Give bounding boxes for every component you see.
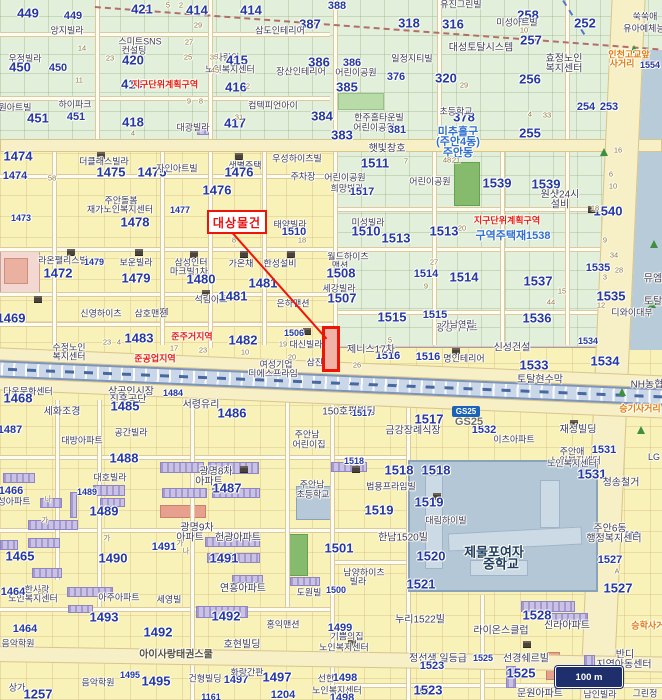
map-label: 범용프라임빌: [366, 480, 416, 493]
map-label: 1517: [352, 408, 372, 418]
map-label: 재성빌딩: [560, 421, 597, 436]
map-label: 29: [460, 81, 468, 90]
map-label: 대림하이빌: [425, 514, 466, 527]
map-label: 화랑간판: [230, 666, 263, 679]
map-label: 성아파트: [0, 495, 31, 508]
map-label: 1518: [422, 463, 451, 478]
scale-bar: 100 m: [555, 666, 623, 688]
street: [95, 0, 100, 140]
map-label: 1519: [365, 503, 394, 518]
map-label: 1491: [210, 551, 239, 566]
map-label: 가: [104, 533, 111, 544]
map-label: 어린이집: [292, 438, 325, 451]
map-label: 그린정: [633, 687, 658, 700]
map-label: 어린이공원: [409, 175, 450, 188]
map-label: 1521: [407, 577, 436, 592]
map-label: 하이파크: [58, 98, 91, 111]
map-label: 1492: [212, 609, 241, 624]
map-label: 388: [328, 0, 346, 12]
map-label: 사거리: [610, 57, 635, 70]
map-label: 26: [353, 361, 361, 370]
map-label: 1493: [90, 610, 119, 625]
map-block: [4, 258, 28, 284]
map-label: 450: [9, 60, 31, 75]
street: [0, 247, 625, 252]
map-label: 1485: [111, 399, 140, 414]
gs25-logo-badge: GS25: [452, 406, 480, 417]
map-label: 1479: [84, 257, 104, 267]
map-label: 대호빌라: [93, 471, 126, 484]
map-label: 1500: [326, 585, 346, 595]
map-label: 승학사거리: [631, 619, 662, 632]
map-label: 318: [398, 16, 420, 31]
map-label: 중학교: [483, 554, 519, 573]
map-label: 1465: [6, 549, 35, 564]
map-label: 1513: [382, 231, 411, 246]
map-label: 지구단위계획구역: [132, 78, 198, 91]
map-label: 9: [187, 97, 191, 106]
map-label: 초등학교: [439, 105, 472, 118]
map-label: 호현빌딩: [224, 636, 261, 651]
map-label: 1511: [361, 156, 389, 171]
map-label: 1488: [110, 451, 139, 466]
map-label: 25: [184, 53, 192, 62]
map-label: 1498: [330, 692, 354, 700]
map-label: 420: [122, 53, 144, 68]
map-label: 라이온스클럽: [473, 622, 528, 637]
map-label: 노인복지센터: [319, 641, 369, 654]
map-label: 1554: [640, 60, 660, 70]
map-canvas[interactable]: 449449앙지빌라421414414388유진그린빌3183162582522…: [0, 0, 662, 700]
map-label: 아이사랑태권스쿨: [139, 646, 213, 661]
map-label: 1475: [97, 165, 126, 180]
apartment-block: [28, 520, 78, 530]
map-label: 449: [17, 6, 39, 21]
map-label: 21: [452, 156, 460, 165]
map-label: 복지센터: [546, 60, 583, 75]
map-label: 유아예체능: [623, 22, 662, 35]
map-label: 준주거지역: [171, 330, 212, 343]
map-label: 앙지빌라: [50, 24, 83, 37]
map-label: 1513: [430, 224, 459, 239]
map-label: 29: [194, 21, 202, 30]
map-label: 23: [103, 338, 111, 347]
map-label: 1527: [604, 581, 633, 596]
map-label: 2: [179, 1, 183, 10]
map-label: 승기사거리: [619, 402, 660, 415]
map-label: 신성건설: [494, 339, 531, 354]
apartment-block: [3, 473, 35, 483]
map-label: 23: [106, 54, 114, 63]
map-label: 연흥아파트: [220, 580, 266, 595]
map-label: 376: [387, 71, 405, 83]
map-label: 1161: [201, 692, 221, 700]
tree-icon: [618, 388, 626, 396]
map-label: 1476: [203, 183, 232, 198]
map-label: 1484: [163, 388, 183, 398]
street: [262, 152, 267, 345]
map-label: 385: [336, 80, 358, 95]
map-label: 5: [166, 1, 170, 10]
map-label: 1537: [524, 274, 553, 289]
map-label: 1520: [417, 549, 446, 564]
map-label: 1534: [591, 354, 620, 369]
map-label: 17: [170, 344, 178, 353]
map-label: 31: [235, 113, 243, 122]
street: [55, 400, 60, 580]
map-label: 도원빌: [297, 586, 322, 599]
map-label: 1514: [414, 268, 438, 280]
tree-icon: [637, 426, 645, 434]
map-label: 27: [185, 38, 193, 47]
map-label: 414: [240, 3, 262, 18]
map-label: 서령유리: [183, 396, 220, 411]
map-label: 449: [64, 10, 82, 22]
map-label: 27: [430, 258, 438, 267]
map-label: 장산인테리어: [276, 65, 326, 78]
map-label: 381: [388, 124, 406, 136]
map-label: GS25: [455, 416, 483, 428]
map-label: 1510: [352, 224, 381, 239]
map-label: 10: [609, 182, 617, 191]
map-label: 1469: [0, 311, 25, 326]
map-label: 준공업지역: [134, 352, 175, 365]
map-label: 19: [279, 340, 287, 349]
map-label: 주차장: [291, 170, 316, 183]
apartment-block: [162, 488, 207, 498]
tree-icon: [650, 240, 658, 248]
street: [336, 207, 626, 212]
map-label: 1489: [90, 504, 119, 519]
school-building: [540, 480, 560, 528]
map-label: 선경쉐르빌: [503, 650, 549, 665]
map-label: 청송철거: [603, 474, 640, 489]
map-label: 1479: [122, 271, 151, 286]
map-label: 햇빛창호: [369, 140, 406, 155]
map-label: A: [614, 567, 619, 576]
map-label: 15: [558, 287, 566, 296]
map-label: 헌광아파트: [215, 529, 261, 544]
map-label: 1491: [152, 541, 176, 553]
map-label: 1539: [483, 176, 512, 191]
map-label: 11: [75, 76, 83, 85]
map-label: 255: [519, 126, 541, 141]
map-label: 7: [404, 157, 408, 166]
map-label: 58: [48, 174, 56, 183]
map-label: 남인빌라: [583, 688, 616, 700]
map-label: 신영하이츠: [80, 307, 121, 320]
map-label: 명인테리어: [443, 352, 484, 365]
map-label: 한남1520빌: [378, 529, 428, 544]
map-label: 1501: [325, 541, 354, 556]
map-label: 1478: [121, 215, 150, 230]
map-label: 대광빌라: [176, 121, 209, 134]
map-label: 450: [49, 62, 67, 74]
map-label: 16: [614, 146, 622, 155]
map-label: 1495: [120, 670, 140, 680]
map-label: 1507: [328, 291, 357, 306]
street: [285, 400, 290, 607]
map-label: 1486: [218, 406, 247, 421]
map-label: 1468: [4, 391, 33, 406]
map-label: 신라아파트: [544, 617, 590, 632]
map-label: 4: [528, 110, 532, 119]
map-label: 대방아파트: [61, 434, 102, 447]
map-label: 구역주택재1538: [475, 227, 550, 243]
map-label: 1492: [144, 625, 173, 640]
map-label: 삼호맨션: [134, 307, 167, 320]
map-label: 이츠아파트: [493, 433, 534, 446]
map-label: 유진그린빌: [440, 0, 481, 11]
map-label: 1525: [507, 666, 536, 681]
map-label: 1518: [344, 456, 364, 466]
map-label: 10: [520, 26, 528, 35]
apartment-block: [93, 485, 125, 496]
map-label: 1204: [271, 689, 295, 700]
map-label: 1506: [284, 328, 304, 338]
map-label: 1472: [44, 266, 73, 281]
map-block: [289, 534, 308, 576]
map-label: 418: [122, 115, 144, 130]
map-label: 1473: [11, 213, 31, 223]
map-label: 1482: [229, 333, 258, 348]
tree-icon: [600, 148, 608, 156]
map-label: 1531: [592, 444, 616, 456]
map-label: 뮤엠: [644, 270, 662, 285]
map-label: 보운빌라: [119, 256, 152, 269]
building-icon: [352, 466, 360, 473]
map-label: 우성하이츠빌: [272, 152, 322, 165]
map-label: 디와이대부: [611, 306, 652, 319]
map-label: 미성아트빌: [496, 16, 537, 29]
map-label: 9: [603, 236, 607, 245]
map-label: 빌라: [350, 575, 367, 588]
map-label: 세화조경: [44, 403, 81, 418]
map-label: 1523: [420, 660, 444, 672]
target-callout[interactable]: 대상물건: [207, 210, 267, 234]
map-label: 대성토탈시스템: [449, 39, 513, 54]
map-block: [338, 93, 384, 110]
map-label: 초등학교: [296, 488, 329, 501]
map-label: 421: [131, 2, 153, 17]
map-label: 일정지티빌: [391, 52, 432, 65]
map-label: 5: [388, 336, 392, 345]
map-label: 451: [67, 111, 85, 123]
map-label: 35: [210, 53, 218, 62]
map-label: 48: [443, 156, 451, 165]
map-label: NH농협: [631, 376, 662, 391]
map-label: 1534: [578, 336, 598, 346]
map-label: 23: [199, 346, 207, 355]
map-label: 254: [577, 101, 595, 113]
map-label: 나: [45, 494, 52, 505]
map-label: 가온채: [229, 257, 254, 270]
map-label: 2: [246, 82, 250, 91]
apartment-block: [70, 492, 77, 518]
map-label: 1515: [378, 310, 407, 325]
map-label: 252: [574, 16, 596, 31]
map-label: 공간빌라: [114, 426, 147, 439]
map-label: 1476: [225, 165, 254, 180]
map-label: 1487: [213, 481, 242, 496]
map-label: 416: [225, 80, 247, 95]
map-label: 1508: [327, 266, 356, 281]
building-icon: [523, 641, 531, 648]
map-label: 대신빌라: [289, 338, 322, 351]
map-label: 1257: [24, 687, 53, 700]
map-label: 나: [183, 546, 190, 557]
map-label: 지구단위계획구역: [474, 214, 540, 227]
target-parcel-highlight[interactable]: [322, 326, 340, 372]
map-label: 1464: [13, 623, 37, 635]
map-label: 384: [311, 109, 333, 124]
map-label: 홍익맨션: [266, 618, 299, 631]
map-label: 8: [199, 97, 203, 106]
map-label: 257: [520, 33, 542, 48]
apartment-block: [32, 568, 62, 578]
map-label: 어린이공원: [335, 66, 376, 79]
map-label: 320: [435, 71, 457, 86]
map-label: 1517: [350, 186, 374, 198]
map-label: 1474: [3, 170, 27, 182]
map-label: 세영빌: [157, 593, 182, 606]
map-label: 음악학원: [81, 676, 114, 689]
map-label: 행정복지센터: [586, 530, 641, 545]
map-label: 1481: [219, 289, 248, 304]
map-label: 20: [458, 224, 466, 233]
map-label: 1519: [415, 495, 444, 510]
map-label: 삼도인테리어: [255, 24, 305, 37]
apartment-block: [160, 462, 204, 473]
map-label: 가남연립: [441, 318, 474, 331]
map-label: 1474: [4, 149, 33, 164]
map-label: 10: [241, 348, 249, 357]
map-label: 316: [442, 17, 464, 32]
map-label: 토탈현수막: [517, 371, 563, 386]
map-label: 1523: [414, 683, 443, 698]
map-label: 9: [424, 282, 428, 291]
map-label: 1464: [1, 586, 25, 598]
map-label: 1483: [125, 331, 154, 346]
map-label: LG: [648, 452, 660, 462]
map-label: 한성설비: [263, 257, 296, 270]
map-label: 383: [331, 128, 353, 143]
map-label: 1536: [523, 311, 552, 326]
map-label: 4: [117, 338, 121, 347]
map-label: 12: [597, 301, 605, 310]
map-label: 1498: [333, 672, 357, 684]
map-label: 설비: [551, 196, 569, 211]
map-label: 44: [547, 298, 555, 307]
map-label: 4: [131, 129, 135, 138]
map-block: [160, 505, 206, 518]
map-label: 1490: [99, 551, 128, 566]
map-label: 1477: [170, 205, 190, 215]
map-label: 금강장례식장: [385, 422, 440, 437]
apartment-block: [28, 538, 60, 548]
map-label: 1527: [598, 554, 622, 566]
map-block: [454, 162, 480, 206]
map-label: 1525: [473, 653, 493, 663]
map-label: 6: [609, 170, 613, 179]
map-label: 자인아트빌: [156, 162, 197, 175]
map-label: 라: [38, 587, 45, 598]
map-label: 1487: [0, 424, 22, 436]
street: [0, 607, 331, 612]
map-label: 1518: [385, 463, 414, 478]
map-label: 14: [78, 44, 86, 53]
building-icon: [34, 296, 42, 303]
map-label: 18: [298, 236, 306, 245]
map-label: 아주아파트: [98, 591, 139, 604]
map-label: 45: [211, 66, 219, 75]
map-label: 33: [543, 111, 551, 120]
map-label: 1489: [77, 487, 97, 497]
map-label: 건형빌딩: [188, 672, 221, 685]
map-label: 253: [600, 101, 618, 113]
map-label: 1495: [142, 674, 171, 689]
map-label: 1480: [187, 272, 216, 287]
street: [0, 322, 336, 327]
map-label: 복지센터: [52, 350, 85, 363]
map-label: 3: [603, 273, 607, 282]
building-icon: [303, 328, 311, 335]
building-icon: [240, 466, 248, 473]
map-label: 컴텍피언아이: [248, 99, 298, 112]
map-label: 34: [610, 251, 618, 260]
street: [480, 595, 485, 700]
map-label: 1497: [263, 670, 292, 685]
map-label: 256: [519, 72, 541, 87]
map-label: 451: [27, 111, 49, 126]
map-label: 음악학원: [1, 637, 34, 650]
map-label: 20: [288, 353, 296, 362]
map-label: 디에스프라임: [248, 367, 298, 380]
map-label: 18: [591, 204, 599, 213]
map-label: 누리1522빌: [395, 611, 445, 626]
map-label: 28: [615, 266, 623, 275]
map-label: 1514: [450, 270, 479, 285]
map-label: 가: [42, 515, 49, 526]
map-label: 1516: [416, 351, 440, 363]
map-label: 414: [186, 3, 208, 18]
